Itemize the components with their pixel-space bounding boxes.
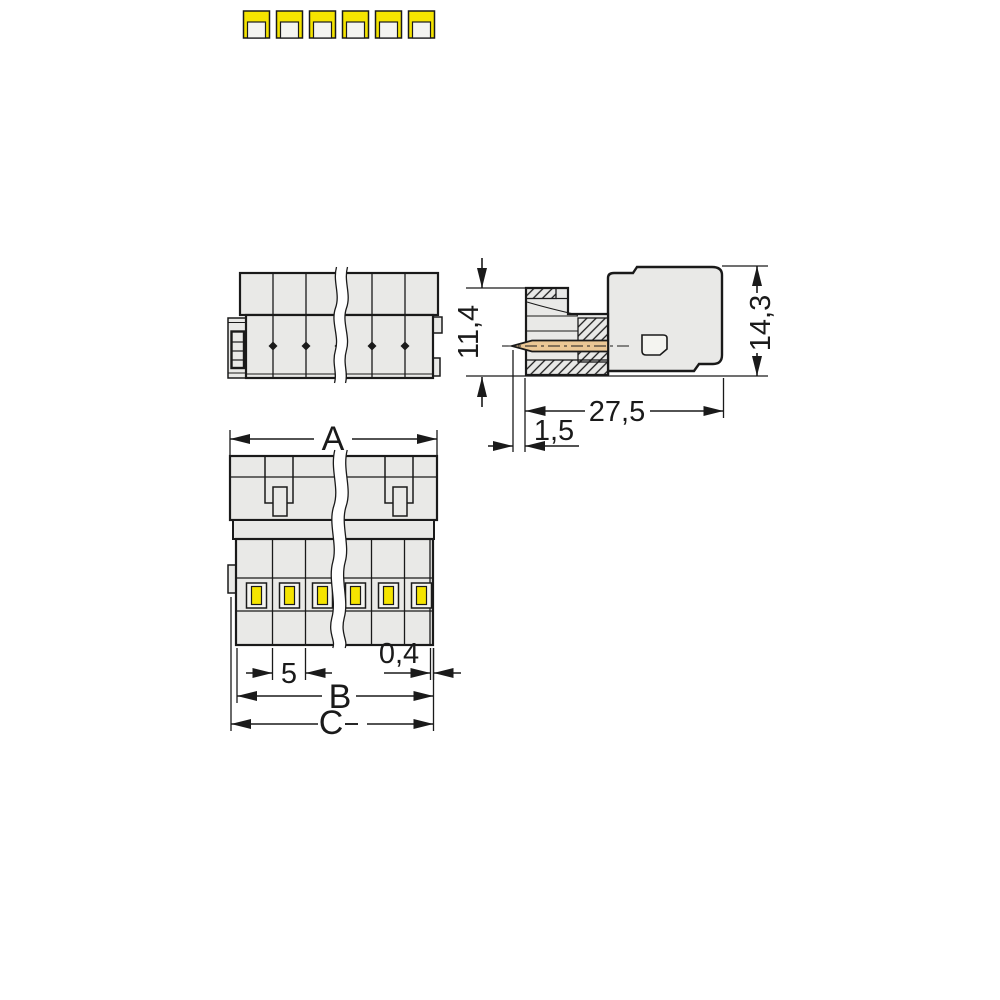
- dim-wall-label: 0,4: [379, 638, 419, 670]
- hatch-top-strip: [526, 288, 556, 299]
- dim-body-length-label: 27,5: [589, 396, 645, 428]
- dimension-pitch: 5: [246, 648, 332, 690]
- connector-dimension-diagram: A 5 0,4 B C: [0, 0, 1000, 1000]
- front-view: [228, 11, 442, 383]
- dimension-a: A: [230, 420, 437, 458]
- dim-pitch-label: 5: [281, 658, 297, 690]
- side-housing-body: [608, 267, 722, 375]
- dim-total-height-label: 14,3: [745, 295, 777, 351]
- dim-c-label: C: [319, 704, 344, 742]
- side-view: [502, 267, 722, 375]
- hatch-bottom-strip: [526, 360, 608, 375]
- dimension-total-height: 14,3: [722, 266, 777, 376]
- flange-latch-detail: [232, 332, 245, 369]
- technical-drawing: A 5 0,4 B C: [0, 0, 1000, 1000]
- dim-pin-tip-label: 1,5: [534, 415, 574, 447]
- front-clamp-circles: [241, 57, 438, 89]
- front-pole-windows: [244, 11, 435, 38]
- hatch-above-pin: [578, 318, 608, 341]
- top-view: [228, 450, 437, 648]
- front-break-line: [334, 267, 348, 383]
- dim-a-label: A: [322, 420, 345, 458]
- side-latch-window: [642, 335, 667, 355]
- front-right-tab: [433, 317, 442, 333]
- dim-front-height-label: 11,4: [453, 305, 485, 359]
